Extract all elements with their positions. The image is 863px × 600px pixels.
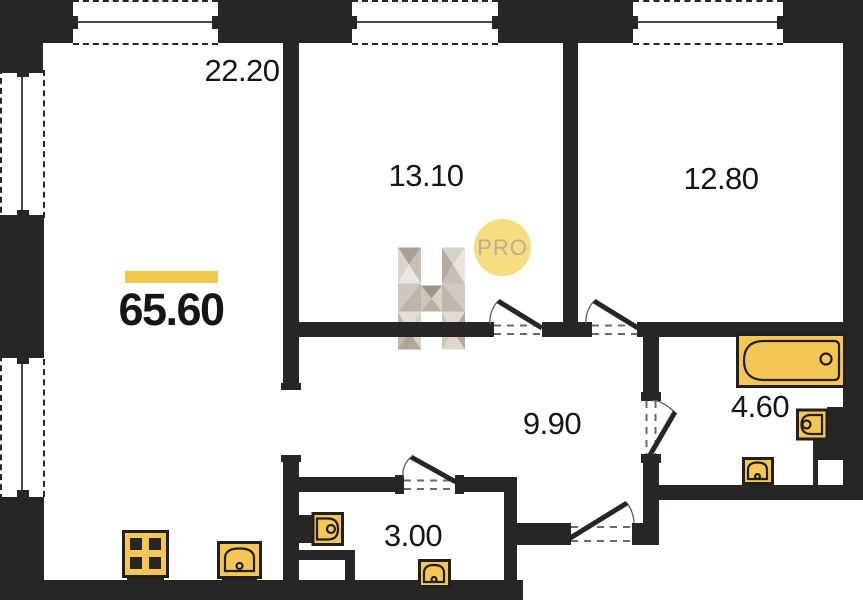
window-end-tab xyxy=(492,16,502,29)
window-end-tab xyxy=(17,355,29,364)
wall xyxy=(563,43,578,337)
bathtub-icon xyxy=(736,333,846,388)
window-glass xyxy=(21,70,23,218)
floor-plan: PRO xyxy=(0,0,863,600)
door-bedroom-2 xyxy=(578,290,656,340)
area-label-living-kitchen: 22.20 xyxy=(204,53,279,89)
window-glass xyxy=(352,21,498,23)
duct-niche xyxy=(818,460,843,485)
wall xyxy=(0,0,73,43)
window-glass xyxy=(633,21,783,23)
pro-badge-label: PRO xyxy=(477,235,528,261)
window-end-tab xyxy=(17,210,29,219)
wall xyxy=(283,477,400,492)
wc-toilet-icon xyxy=(294,512,344,546)
window-glass xyxy=(73,21,218,23)
area-label-bedroom-1: 13.10 xyxy=(388,158,463,194)
window-end-tab xyxy=(628,16,638,29)
door-bedroom-1 xyxy=(480,292,556,340)
window-facade-line xyxy=(633,0,783,2)
total-area-label: 65.60 xyxy=(118,284,223,336)
wall xyxy=(283,43,299,390)
area-label-hallway: 9.90 xyxy=(523,406,581,442)
wc-washbasin-icon xyxy=(418,559,451,594)
kitchen-sink-icon xyxy=(217,541,262,585)
bathroom-toilet-icon xyxy=(796,407,844,441)
area-label-bathroom: 4.60 xyxy=(731,389,789,425)
window-wall-line xyxy=(633,43,783,45)
total-area-bar xyxy=(125,271,218,283)
wall xyxy=(283,322,490,337)
window-wall-line xyxy=(43,70,45,218)
wall xyxy=(281,455,301,462)
window-facade-line xyxy=(352,0,498,2)
area-label-bedroom-2: 12.80 xyxy=(683,161,758,197)
window-end-tab xyxy=(17,490,29,499)
stove-icon xyxy=(122,530,169,585)
window-glass xyxy=(21,359,23,497)
area-label-wc: 3.00 xyxy=(384,518,442,554)
wall xyxy=(218,0,352,43)
wall xyxy=(843,43,863,500)
wall xyxy=(281,383,301,390)
pro-badge: PRO xyxy=(474,219,531,276)
window-end-tab xyxy=(68,16,78,29)
window-wall-line xyxy=(73,43,218,45)
window-end-tab xyxy=(777,16,787,29)
wall xyxy=(0,215,44,358)
bathroom-washbasin-icon xyxy=(742,457,774,489)
door-bathroom xyxy=(636,390,682,464)
wall xyxy=(345,556,355,582)
window-end-tab xyxy=(17,68,29,77)
door-entrance xyxy=(550,494,650,548)
window-end-tab xyxy=(212,16,222,29)
window-wall-line xyxy=(352,43,498,45)
window-facade-line xyxy=(73,0,218,2)
wall xyxy=(783,0,863,43)
door-wc xyxy=(393,449,467,495)
window-wall-line xyxy=(43,359,45,497)
window-end-tab xyxy=(347,16,357,29)
wall xyxy=(498,0,633,43)
